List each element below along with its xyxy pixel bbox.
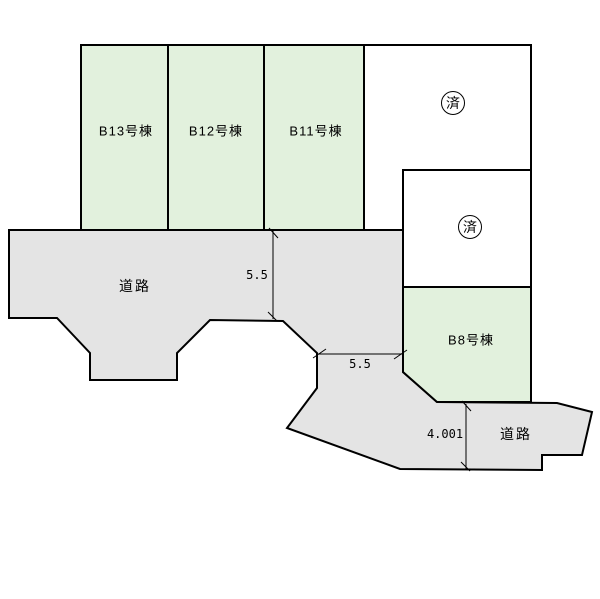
plot-b11-label: B11号棟 [289, 125, 342, 138]
sold-stamp-1-text: 済 [446, 96, 460, 110]
road-bottom-right-label: 道路 [500, 427, 532, 441]
dimension-strip-width-5-5-value: 5.5 [349, 358, 371, 370]
sold-stamp-1: 済 [441, 91, 465, 115]
plot-b13-label: B13号棟 [99, 125, 153, 138]
sold-stamp-2: 済 [458, 215, 482, 239]
lot-layout-diagram: B13号棟 B12号棟 B11号棟 B8号棟 済 済 道路 道路 5.5 5.5… [0, 0, 600, 599]
lot-layout-canvas [0, 0, 600, 599]
dimension-road-width-4-001-value: 4.001 [427, 428, 463, 440]
dimension-road-width-5-5-value: 5.5 [246, 269, 268, 281]
plot-b12-label: B12号棟 [189, 125, 243, 138]
sold-stamp-2-text: 済 [463, 220, 477, 234]
road-left-label: 道路 [119, 279, 151, 293]
plot-b8-label: B8号棟 [448, 334, 494, 347]
